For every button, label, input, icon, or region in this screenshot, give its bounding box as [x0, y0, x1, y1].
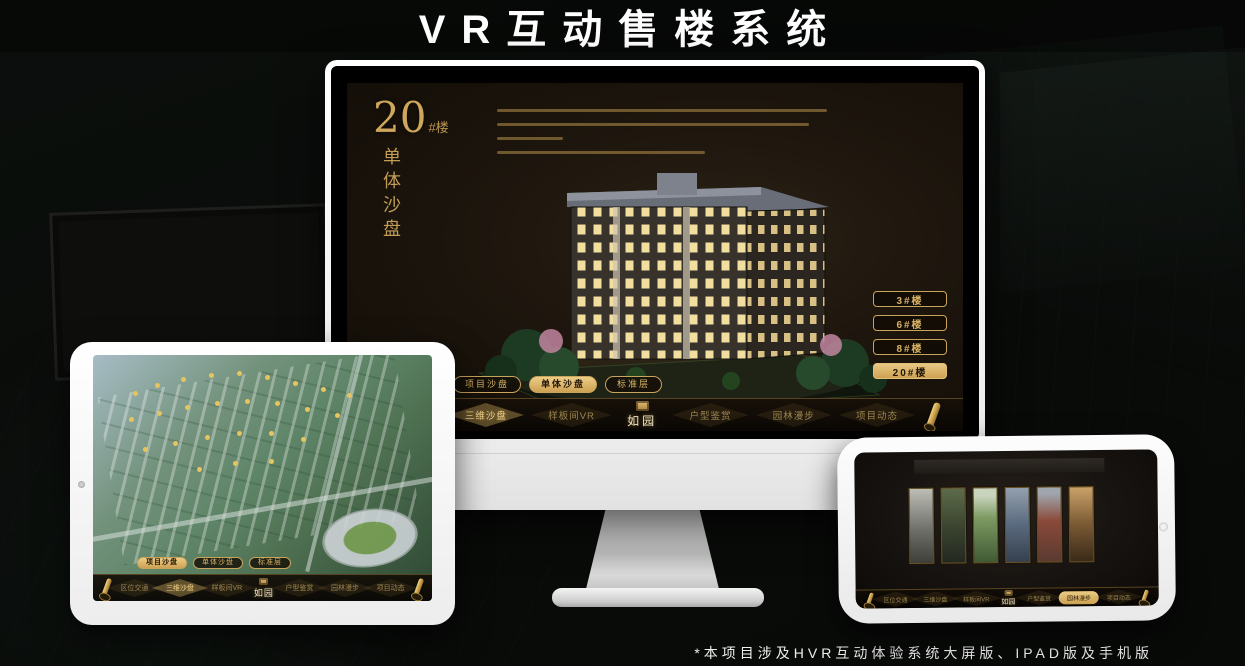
background-photo — [1000, 47, 1245, 293]
ruyuan-logo[interactable]: 如园 — [1001, 589, 1015, 606]
description-line — [497, 109, 827, 112]
building-model-render[interactable] — [431, 149, 901, 415]
tablet-sandtable-tabs: 项目沙盘 单体沙盘 标准层 — [137, 557, 291, 569]
nav-item-garden-walk[interactable]: 园林漫步 — [325, 581, 365, 595]
nav-item-project-news[interactable]: 项目动态 — [371, 581, 411, 595]
tablet-navbar: 区位交通 三维沙盘 样板间VR 如园 户型鉴赏 园林漫步 项目动态 — [93, 574, 432, 601]
nav-item-project-news[interactable]: 项目动态 — [1103, 591, 1135, 602]
nav-item-3d-sandtable[interactable]: 三维沙盘 — [456, 405, 516, 425]
page-title: VR互动售楼系统 — [0, 0, 1245, 52]
sandtable-tabs: 项目沙盘 单体沙盘 标准层 — [453, 376, 662, 393]
tab-standard-floor[interactable]: 标准层 — [605, 376, 662, 393]
building-button-8[interactable]: 8#楼 — [873, 339, 947, 355]
tab-single-sandtable[interactable]: 单体沙盘 — [529, 376, 597, 393]
nav-item-3d-sandtable[interactable]: 三维沙盘 — [160, 581, 200, 595]
building-number-suffix: #楼 — [428, 120, 448, 135]
nav-item-unit-gallery[interactable]: 户型鉴赏 — [1023, 592, 1055, 603]
gallery-panel[interactable] — [1069, 486, 1095, 562]
scroll-handle-icon[interactable] — [1140, 589, 1149, 604]
nav-item-showroom-vr[interactable]: 样板间VR — [959, 593, 993, 604]
nav-item-unit-gallery[interactable]: 户型鉴赏 — [279, 581, 319, 595]
tab-single-sandtable[interactable]: 单体沙盘 — [193, 557, 243, 569]
ruyuan-seal-icon — [259, 578, 268, 585]
interior-doorway — [914, 458, 1104, 474]
building-number: 20 — [373, 93, 426, 142]
phone-camera-icon — [1159, 522, 1168, 531]
headline-vertical-label: 单体沙盘 — [377, 147, 403, 257]
building-button-20[interactable]: 20#楼 — [873, 363, 947, 379]
tab-project-sandtable[interactable]: 项目沙盘 — [453, 376, 521, 393]
nav-item-garden-walk[interactable]: 园林漫步 — [764, 405, 824, 425]
nav-item-location-traffic[interactable]: 区位交通 — [114, 581, 154, 595]
nav-item-showroom-vr[interactable]: 样板间VR — [539, 405, 604, 425]
ruyuan-seal-icon — [1004, 589, 1012, 595]
gallery-panel[interactable] — [1037, 486, 1063, 562]
phone-device: 区位交通 三维沙盘 样板间VR 如园 户型鉴赏 园林漫步 项目动态 — [837, 434, 1176, 624]
monitor-stand-neck — [585, 505, 720, 593]
nav-item-3d-sandtable[interactable]: 三维沙盘 — [919, 593, 951, 604]
nav-item-garden-walk[interactable]: 园林漫步 — [1063, 592, 1095, 603]
nav-item-location-traffic[interactable]: 区位交通 — [879, 593, 911, 604]
building-button-6[interactable]: 6#楼 — [873, 315, 947, 331]
building-number-markers — [133, 391, 138, 396]
gallery-panel[interactable] — [973, 487, 999, 563]
nav-item-project-news[interactable]: 项目动态 — [847, 405, 907, 425]
tablet-device: 项目沙盘 单体沙盘 标准层 区位交通 三维沙盘 样板间VR 如园 户型鉴赏 园林… — [70, 342, 455, 625]
phone-screen: 区位交通 三维沙盘 样板间VR 如园 户型鉴赏 园林漫步 项目动态 — [854, 449, 1159, 608]
ruyuan-seal-icon — [636, 401, 649, 411]
ruyuan-logo[interactable]: 如园 — [627, 401, 657, 429]
scene-gallery — [909, 486, 1095, 564]
building-button-3[interactable]: 3#楼 — [873, 291, 947, 307]
building-selector: 3#楼 6#楼 8#楼 20#楼 — [873, 291, 947, 379]
nav-item-unit-gallery[interactable]: 户型鉴赏 — [680, 405, 740, 425]
nav-item-showroom-vr[interactable]: 样板间VR — [206, 581, 249, 595]
tab-standard-floor[interactable]: 标准层 — [249, 557, 291, 569]
gallery-panel[interactable] — [941, 487, 967, 563]
gallery-panel[interactable] — [1005, 487, 1031, 563]
ruyuan-logo[interactable]: 如园 — [254, 578, 274, 599]
scroll-handle-icon[interactable] — [926, 401, 942, 429]
tablet-camera-icon — [78, 481, 85, 488]
scroll-handle-icon[interactable] — [413, 578, 425, 599]
gallery-panel[interactable] — [909, 488, 935, 564]
description-line — [497, 123, 809, 126]
tablet-screen: 项目沙盘 单体沙盘 标准层 区位交通 三维沙盘 样板间VR 如园 户型鉴赏 园林… — [93, 355, 432, 601]
phone-navbar: 区位交通 三维沙盘 样板间VR 如园 户型鉴赏 园林漫步 项目动态 — [856, 586, 1159, 608]
description-line — [497, 137, 563, 140]
tab-project-sandtable[interactable]: 项目沙盘 — [137, 557, 187, 569]
page: VR互动售楼系统 20#楼 单体沙盘 — [0, 0, 1245, 666]
monitor-stand-base — [552, 588, 764, 607]
footnote: *本项目涉及HVR互动体验系统大屏版、IPAD版及手机版 — [694, 643, 1153, 663]
